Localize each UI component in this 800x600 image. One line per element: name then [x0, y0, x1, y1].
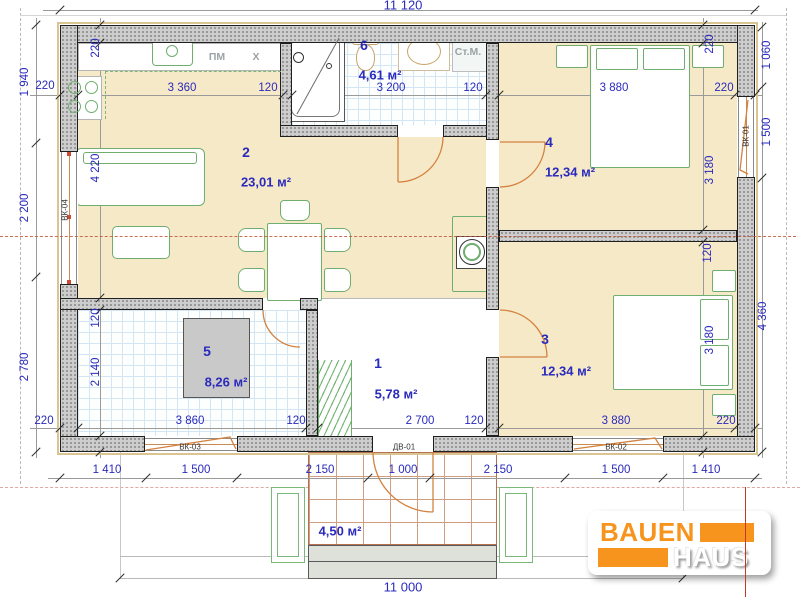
stove-burner-3: [68, 100, 81, 113]
room3-nightstand-top: [712, 270, 736, 292]
porch-step-2: [308, 561, 497, 579]
room3-number: 3: [541, 331, 549, 347]
wall-bottom-2: [237, 436, 373, 452]
room3-nightstand-bottom: [712, 394, 736, 416]
wall-bottom-4: [663, 436, 755, 452]
kitchen-front-line: [105, 71, 281, 72]
bathtub-inner: [291, 37, 340, 117]
window-vk04-mark3: [67, 280, 71, 284]
site-boundary-right: [786, 8, 787, 484]
porch-planter-left: [271, 487, 305, 563]
window-vk04-mark1: [67, 152, 71, 156]
room6-area: 4,61 м²: [359, 68, 402, 83]
wall-room5-right: [306, 310, 318, 436]
dishwasher-label: ПМ: [209, 51, 225, 63]
dim-left-outer-0: 1 940: [19, 68, 31, 97]
dim-right-outer-0: 1 060: [761, 41, 773, 70]
dimline-bottom-outer: [48, 478, 762, 479]
porch-planter-right: [499, 487, 533, 563]
bauen-haus-logo: BAUEN HAUS: [588, 511, 771, 575]
logo-line2: HAUS: [673, 544, 749, 570]
stairs: [318, 360, 352, 436]
label-vk01: ВК-01: [742, 125, 751, 147]
dining-chair-right1: [324, 228, 351, 252]
dim-top-1: 3 360: [168, 82, 197, 94]
dim-boto-5: 1 500: [602, 464, 631, 476]
kitchen-sink-bowl: [166, 45, 178, 57]
dim-right-inner-1: 3 180: [704, 156, 716, 185]
porch-area-label: 4,50 м²: [319, 524, 362, 539]
site-boundary-top: [20, 15, 786, 16]
stove-burner-4: [85, 100, 98, 113]
dim-left-inner-2: 120: [90, 308, 102, 327]
dim-left-inner-1: 4 220: [90, 154, 102, 183]
dim-top-3: 3 200: [377, 82, 406, 94]
window-vk01-edge2: [753, 97, 754, 177]
dim-boto-6: 1 410: [692, 464, 721, 476]
dim-boto-3: 1 000: [389, 464, 418, 476]
dim-right-inner-0: 220: [704, 34, 716, 53]
room1-number: 1: [374, 355, 382, 371]
wall-bottom-3: [433, 436, 573, 452]
dim-boto-1: 1 500: [182, 464, 211, 476]
dim-right-inner-3: 3 180: [704, 326, 716, 355]
dim-right-outer-2: 4 360: [757, 302, 769, 331]
dim-bot-1: 3 860: [176, 415, 205, 427]
dim-top-total: 11 120: [384, 0, 423, 13]
dim-top-5: 3 880: [600, 82, 629, 94]
room2-area: 23,01 м²: [241, 175, 291, 190]
dim-top-0: 220: [35, 80, 54, 92]
dim-bottom-total: 11 000: [384, 580, 423, 595]
window-vk01-edge: [738, 97, 739, 177]
floor-plan-canvas: 11 120 220 3 360 120 3 200 120 3 880 220…: [0, 0, 800, 600]
room6-number: 6: [360, 37, 368, 53]
section-line: [0, 236, 796, 237]
dim-top-6: 220: [714, 82, 733, 94]
dining-table: [267, 223, 322, 301]
fridge-label: X: [252, 51, 259, 63]
dining-chair-right2: [324, 268, 351, 292]
room4-pillow-right: [643, 48, 685, 70]
dining-chair-left2: [238, 268, 265, 292]
dim-bot-4: 120: [464, 415, 483, 427]
window-vk02-edge: [573, 438, 663, 439]
dim-right-inner-2: 120: [702, 243, 714, 262]
wall-central-2: [486, 187, 499, 310]
dim-bot-5: 3 880: [602, 415, 631, 427]
room4-number: 4: [545, 134, 553, 150]
chimney-flue-inner: [463, 243, 481, 261]
logo-bar-bottom: [598, 548, 668, 567]
room3-area: 12,34 м²: [541, 364, 591, 379]
window-vk03-edge: [145, 438, 237, 439]
bathtub-drain: [293, 52, 304, 63]
dim-left-inner-0: 220: [90, 38, 102, 57]
window-vk04-edge2: [76, 152, 77, 284]
dim-boto-4: 2 150: [484, 464, 513, 476]
room1-area: 5,78 м²: [375, 387, 418, 402]
coffee-table: [112, 226, 170, 259]
label-vk02: ВК-02: [605, 443, 627, 452]
dim-boto-2: 2 150: [306, 464, 335, 476]
red-axis-line: [745, 487, 746, 597]
wall-top: [60, 25, 755, 43]
wall-room5-top-right: [300, 298, 318, 310]
dim-left-outer-1: 2 200: [19, 194, 31, 223]
wall-right-lower: [737, 177, 755, 452]
room2-number: 2: [242, 144, 250, 160]
kitchen-side-line: [105, 71, 106, 119]
room5-area: 8,26 м²: [205, 375, 248, 390]
label-vk03: ВК-03: [179, 443, 201, 452]
dim-bot-2: 120: [286, 415, 305, 427]
bathtub-overflow: [326, 63, 332, 69]
dim-top-2: 120: [258, 82, 277, 94]
dim-bot-0: 220: [34, 415, 53, 427]
room4-pillow-left: [596, 48, 638, 70]
label-dv01: ДВ-01: [393, 443, 415, 452]
dining-chair-top: [280, 200, 310, 221]
dim-top-4: 120: [463, 82, 482, 94]
porch-step-1: [308, 545, 497, 562]
room4-nightstand-left: [556, 45, 588, 68]
stove-burner-2: [85, 81, 98, 94]
room5-number: 5: [203, 343, 211, 359]
dim-bot-3: 2 700: [406, 415, 435, 427]
dining-chair-left1: [238, 228, 265, 252]
room4-area: 12,34 м²: [545, 165, 595, 180]
label-vk04: ВК-04: [61, 199, 70, 221]
dim-left-inner-3: 2 140: [90, 358, 102, 387]
dim-boto-0: 1 410: [93, 464, 122, 476]
dim-bot-6: 220: [716, 415, 735, 427]
washing-machine-label: Ст.М.: [455, 46, 481, 58]
dim-right-outer-1: 1 500: [761, 118, 773, 147]
wall-bath-bottom-left: [280, 125, 398, 137]
dim-left-outer-2: 2 780: [19, 353, 31, 382]
wall-right-upper: [737, 25, 755, 97]
